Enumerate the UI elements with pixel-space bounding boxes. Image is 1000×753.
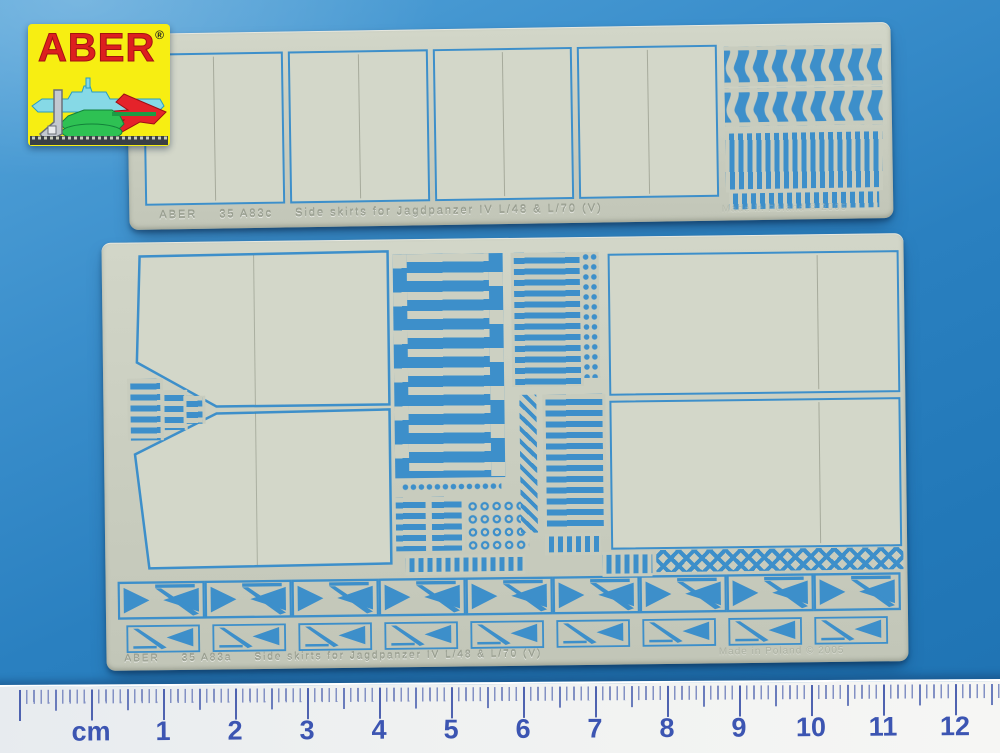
etched-code: 35 A83a (182, 652, 233, 664)
fold-line (502, 52, 505, 196)
comb-strip-parts (725, 128, 883, 192)
ruler-number: 5 (429, 714, 473, 745)
ruler-number: 9 (717, 712, 761, 743)
fold-line (818, 402, 821, 543)
bottom-fret-sheet: ABER35 A83aSide skirts for Jagdpanzer IV… (101, 233, 908, 671)
etched-title: Side skirts for Jagdpanzer IV L/48 & L/7… (295, 203, 603, 220)
etched-brand: ABER (124, 653, 159, 664)
ladder-strip-parts (511, 252, 585, 387)
ladder-strip-parts (542, 394, 607, 530)
top-fret-sheet: ABER35 A83cSide skirts for Jagdpanzer IV… (127, 22, 894, 230)
s-hook-row (724, 44, 883, 86)
ruler-number: 1 (141, 716, 185, 747)
hanger-bracket-row-1 (119, 573, 900, 618)
s-hook-row (724, 86, 883, 126)
ruler-number: 4 (357, 715, 401, 746)
ruler-number: 2 (213, 715, 257, 746)
aber-logo: ABER ® (28, 24, 170, 146)
etched-code: 35 A83c (219, 208, 273, 221)
comb-strip-parts (545, 533, 601, 556)
ruler-unit-label: cm (69, 716, 113, 747)
hinge-strip-stack (183, 396, 205, 424)
slat-stack-parts (429, 496, 466, 550)
etched-origin: Made in Poland © 2005 (722, 202, 848, 215)
fold-line (357, 54, 360, 198)
skirt-panel (577, 45, 719, 199)
skirt-panel-row (143, 45, 719, 206)
skirt-panel (432, 47, 574, 201)
ring-column-parts (582, 252, 601, 378)
hinge-strip-stack (127, 378, 164, 440)
skirt-panel (608, 250, 901, 396)
fret-strip-icon (30, 136, 168, 145)
mounting-rail-parts (393, 253, 506, 478)
ruler-number: 8 (645, 713, 689, 744)
ruler-number: 6 (501, 714, 545, 745)
comb-strip-parts (602, 551, 652, 577)
photo-scene: ABER35 A83cSide skirts for Jagdpanzer IV… (0, 0, 1000, 753)
spring-strip-parts (519, 395, 538, 533)
slat-stack-parts (393, 497, 430, 551)
ruler-number: 3 (285, 715, 329, 746)
ruler-number: 12 (933, 711, 977, 742)
tank-icon (60, 110, 156, 140)
ruler-number: 11 (861, 712, 905, 743)
brand-name: ABER (38, 26, 155, 71)
ruler-number: 10 (789, 712, 833, 743)
ruler-number: 7 (573, 713, 617, 744)
centimeter-ruler: cm 1 2 3 4 5 6 7 8 9 10 11 12 (0, 679, 1000, 753)
registered-mark-icon: ® (155, 28, 164, 42)
logo-artwork (28, 72, 170, 146)
mesh-strip-part (656, 547, 903, 572)
skirt-panel (609, 397, 902, 550)
skirt-panel (288, 49, 430, 203)
etched-label: ABER35 A83cSide skirts for Jagdpanzer IV… (159, 202, 625, 221)
caliper-tool-icon (40, 90, 62, 142)
etched-brand: ABER (159, 209, 197, 222)
fold-line (816, 255, 819, 389)
fold-line (647, 50, 650, 194)
comb-strip-parts (405, 554, 525, 575)
fold-line (213, 57, 216, 201)
ring-chain-parts (401, 481, 501, 493)
etched-origin: Made in Poland © 2005 (719, 645, 845, 658)
